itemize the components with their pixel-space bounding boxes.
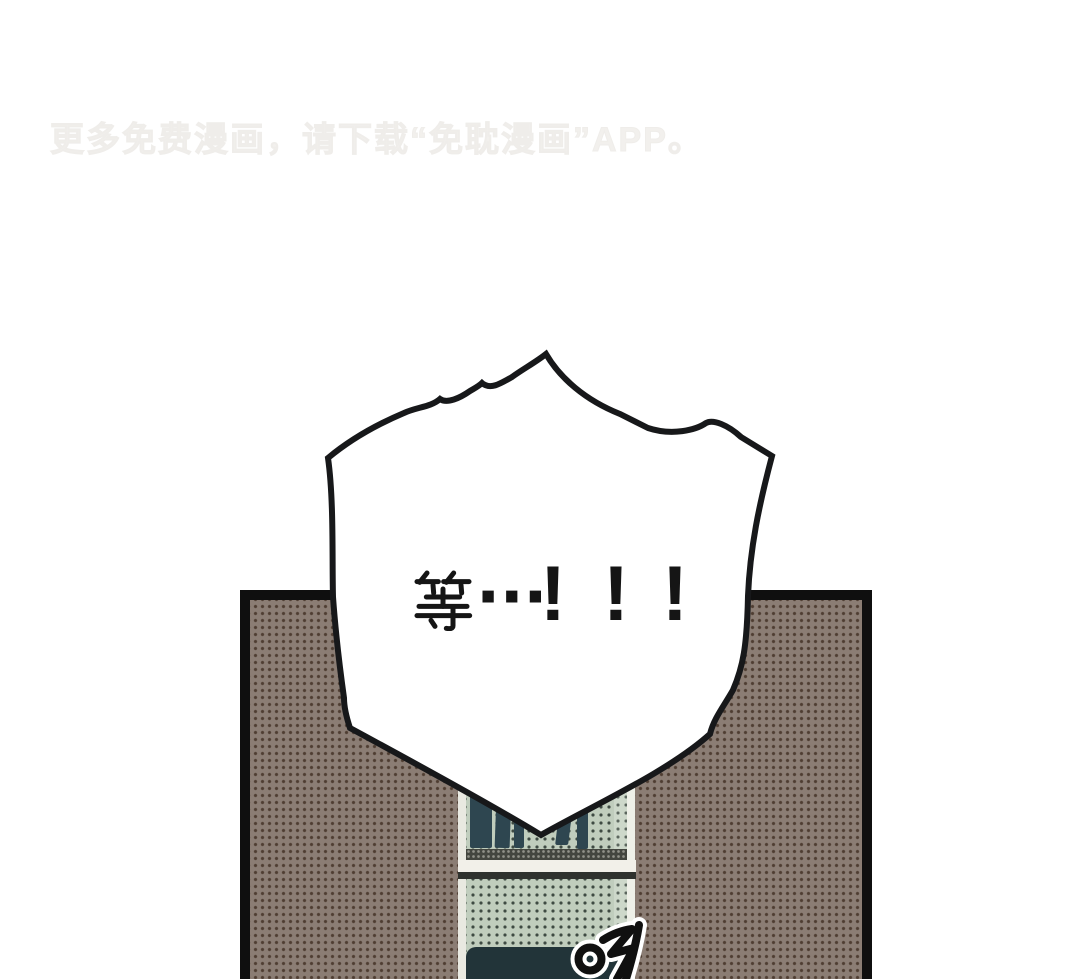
bubble-text: 等…！！！ ··· ! ! ! bbox=[0, 0, 1080, 979]
bubble-exclamation: ! bbox=[603, 554, 629, 632]
bubble-exclamation: ! bbox=[540, 554, 566, 632]
bubble-ellipsis: ··· bbox=[477, 556, 548, 636]
hanzi-deng-glyph bbox=[411, 567, 475, 631]
bubble-dialogue: 等…！！！ bbox=[0, 0, 1, 1]
bubble-exclamation: ! bbox=[662, 554, 688, 632]
comic-page: 更多免费漫画，请下载“免耽漫画”APP。 bbox=[0, 0, 1080, 979]
